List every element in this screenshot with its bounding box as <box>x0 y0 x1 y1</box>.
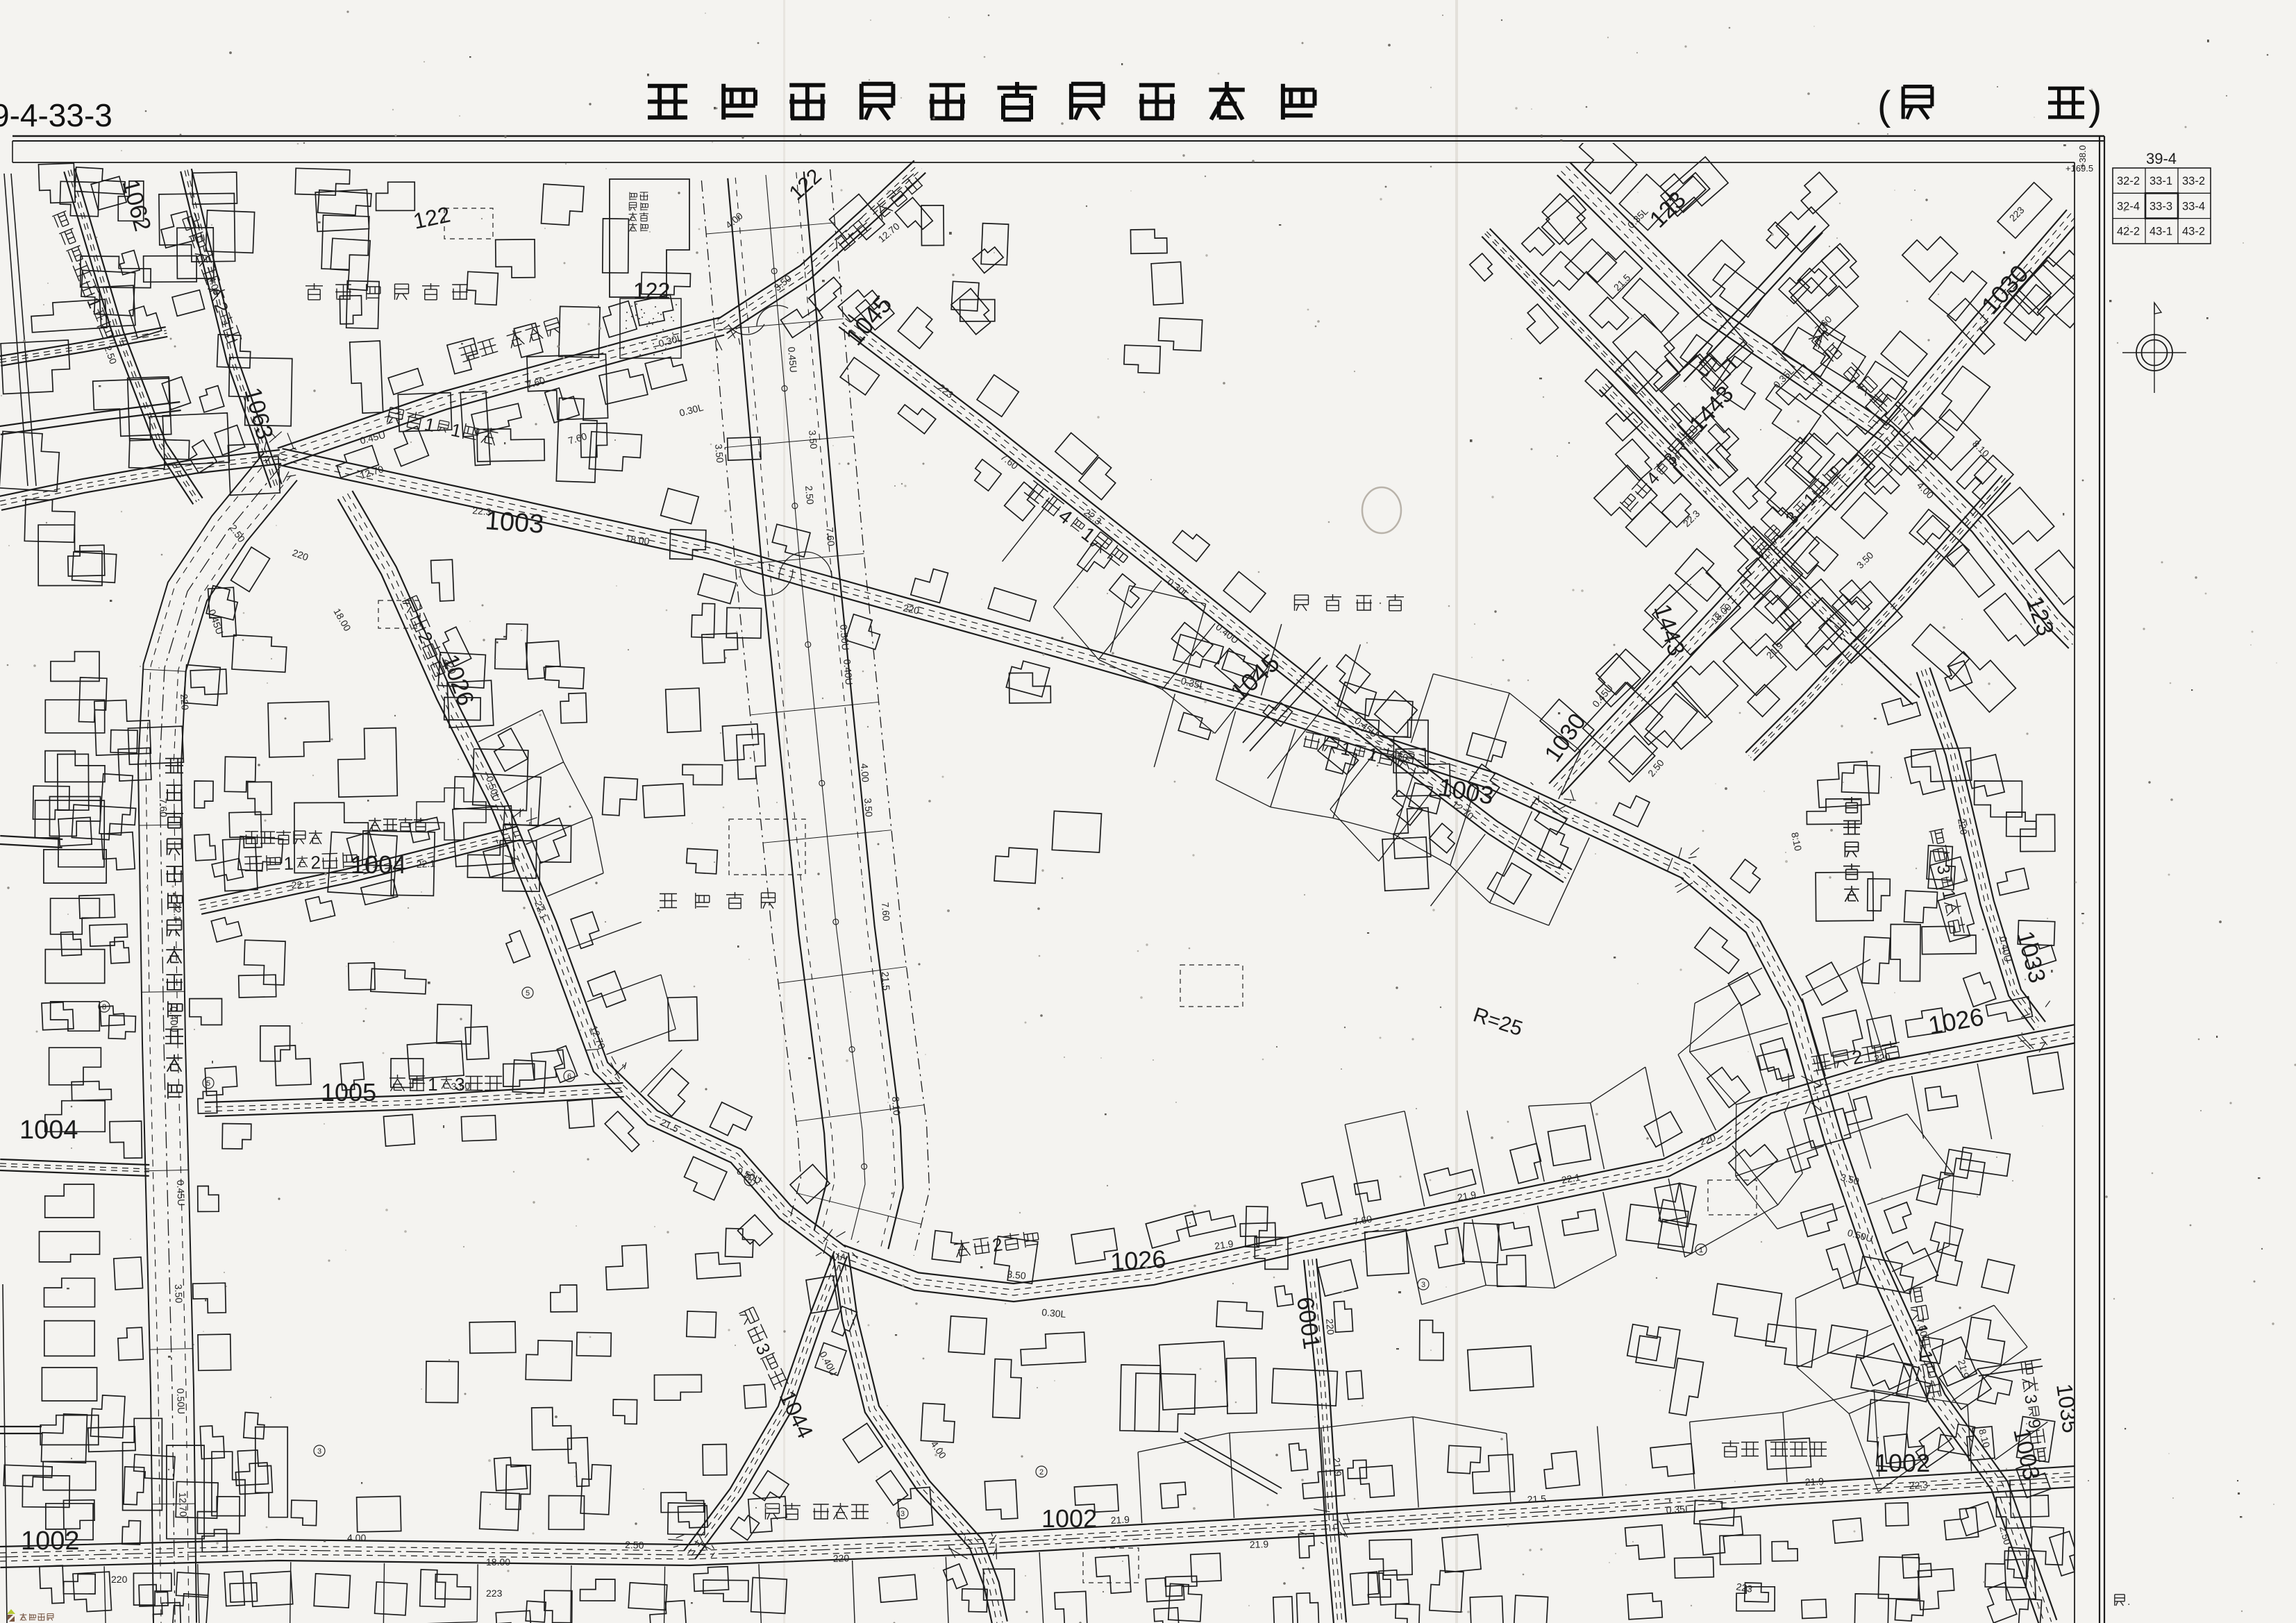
svg-text:21.9: 21.9 <box>1250 1538 1269 1550</box>
svg-text:220: 220 <box>833 1552 850 1564</box>
svg-text:33-1: 33-1 <box>2150 175 2172 187</box>
svg-text:3: 3 <box>317 1447 321 1456</box>
svg-text:220: 220 <box>1324 1318 1336 1336</box>
svg-text:122: 122 <box>633 278 670 303</box>
svg-text:0.30L: 0.30L <box>1041 1306 1067 1320</box>
svg-text:21.9: 21.9 <box>1804 1476 1824 1488</box>
svg-text:21.9: 21.9 <box>1331 1457 1343 1477</box>
svg-text:22.3: 22.3 <box>1909 1479 1928 1491</box>
svg-text:0.45U: 0.45U <box>175 1180 187 1206</box>
svg-text:0.50U: 0.50U <box>838 624 851 651</box>
svg-text:3.50: 3.50 <box>1007 1268 1027 1281</box>
svg-text:22.1: 22.1 <box>291 879 310 891</box>
svg-text:3: 3 <box>900 1510 905 1518</box>
svg-text:18.00: 18.00 <box>486 1556 510 1567</box>
svg-text:+38.0: +38.0 <box>2077 145 2088 168</box>
svg-text:1004: 1004 <box>19 1116 78 1145</box>
svg-text:2: 2 <box>310 852 321 873</box>
svg-text:(: ( <box>1877 83 1891 128</box>
svg-text:43-2: 43-2 <box>2182 226 2205 238</box>
svg-text:42-2: 42-2 <box>2117 226 2140 238</box>
svg-text:0.35L: 0.35L <box>1666 1503 1691 1515</box>
svg-text:3.50: 3.50 <box>862 798 875 818</box>
svg-text:9-4-33-3: 9-4-33-3 <box>0 97 112 133</box>
svg-text:7.60: 7.60 <box>158 798 169 818</box>
svg-text:3.50: 3.50 <box>451 1080 471 1092</box>
svg-text:1: 1 <box>1699 1246 1703 1254</box>
svg-text:39-4: 39-4 <box>2146 150 2177 167</box>
svg-text:2.50: 2.50 <box>803 485 816 505</box>
svg-text:1: 1 <box>428 1074 438 1095</box>
svg-text:2: 2 <box>1039 1468 1044 1477</box>
svg-text:7.60: 7.60 <box>824 527 837 547</box>
svg-text:8.10: 8.10 <box>890 1096 903 1116</box>
svg-text:5: 5 <box>748 1177 752 1185</box>
svg-text:3.50: 3.50 <box>713 444 726 464</box>
svg-text:220: 220 <box>1873 1051 1891 1064</box>
svg-text:22.1: 22.1 <box>171 902 183 922</box>
svg-text:.: . <box>2127 1596 2130 1608</box>
svg-text:6: 6 <box>567 1073 571 1081</box>
svg-text:): ) <box>2088 83 2102 128</box>
svg-text:0.40U: 0.40U <box>841 659 855 686</box>
svg-text:4.00: 4.00 <box>347 1532 366 1543</box>
svg-text:1002: 1002 <box>1041 1504 1097 1533</box>
svg-text:3.50: 3.50 <box>807 430 819 450</box>
svg-text:1005: 1005 <box>321 1078 376 1107</box>
svg-text:0.45U: 0.45U <box>786 346 799 373</box>
svg-text:223: 223 <box>486 1588 503 1599</box>
svg-text:33-2: 33-2 <box>2182 175 2205 187</box>
svg-text:32-2: 32-2 <box>2117 175 2140 187</box>
svg-text:0.50U: 0.50U <box>175 1388 187 1415</box>
svg-text:7.60: 7.60 <box>880 902 892 922</box>
svg-text:33-3: 33-3 <box>2150 200 2172 212</box>
svg-text:43-1: 43-1 <box>2150 226 2172 238</box>
svg-text:22.1: 22.1 <box>416 858 435 870</box>
svg-text:21.5: 21.5 <box>1527 1493 1546 1505</box>
svg-text:33-4: 33-4 <box>2182 200 2205 212</box>
svg-text:1003: 1003 <box>484 506 544 539</box>
svg-text:1002: 1002 <box>1875 1449 1930 1477</box>
svg-text:3: 3 <box>1421 1281 1425 1289</box>
svg-text:32-4: 32-4 <box>2117 200 2140 212</box>
svg-text:1026: 1026 <box>1109 1245 1166 1276</box>
svg-text:21.5: 21.5 <box>880 971 892 991</box>
svg-text:1: 1 <box>283 853 294 874</box>
svg-text:220: 220 <box>111 1574 128 1585</box>
svg-text:0.40U: 0.40U <box>168 1007 180 1033</box>
svg-text:4.00: 4.00 <box>859 763 871 783</box>
svg-text:1002: 1002 <box>21 1527 80 1556</box>
svg-text:21.9: 21.9 <box>1110 1514 1130 1526</box>
svg-text:8: 8 <box>102 1003 106 1011</box>
svg-text:2.50: 2.50 <box>625 1539 644 1551</box>
svg-text:5: 5 <box>526 989 530 998</box>
svg-text:22.3: 22.3 <box>472 505 492 517</box>
svg-text:3.50: 3.50 <box>173 1284 185 1304</box>
svg-text:12.70: 12.70 <box>177 1492 189 1517</box>
svg-text:1004: 1004 <box>351 850 406 879</box>
svg-text:5: 5 <box>206 1079 210 1088</box>
svg-text:220: 220 <box>178 693 191 711</box>
